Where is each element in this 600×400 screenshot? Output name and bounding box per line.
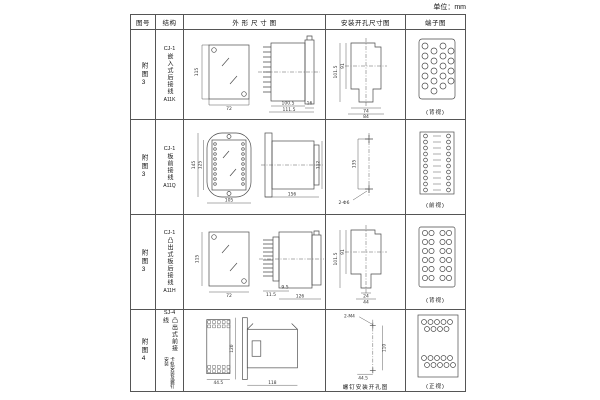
terminal-cell-a11q: (前视) [406, 120, 466, 215]
dim-depth2: 111.5 [282, 106, 295, 112]
dim-width: 105 [224, 198, 233, 204]
dim-socket-depth: 9.5 [281, 285, 288, 291]
dim-length: 126 [295, 294, 304, 300]
terminal-drawing-a11k [407, 33, 465, 107]
code-label: A11H [163, 288, 175, 294]
figure-number: 附图3 [138, 62, 148, 88]
unit-label: 单位：mm [130, 2, 466, 12]
dim-cutout-h2: 91 [340, 63, 346, 69]
dim-flange: 16 [306, 100, 312, 106]
outline-cell-a11q: 145 125 105 156 112 [184, 120, 326, 215]
dim-hole-spacing: 110 [381, 344, 387, 353]
fig-no-a11h: 附图3 [131, 215, 156, 310]
outline-cell-a11k: 115 72 100.5 111.5 16 [184, 30, 326, 120]
terminal-drawing-sj4 [407, 311, 465, 381]
structure-a11h: CJ-1 凸出式板后接线 A11H [156, 215, 184, 310]
structure-label: 凸出式前接线 [161, 317, 179, 355]
mounting-cell-a11q: 135 2-Φ6 [326, 120, 406, 215]
spec-table: 图号 结构 外 形 尺 寸 图 安装开孔尺寸图 端子图 附图3 CJ-1 嵌入式… [130, 14, 466, 392]
code-label: A11Q [163, 183, 175, 189]
mounting-drawing-a11k: 101.5 91 74 84 [327, 31, 405, 119]
code-label: A11K [164, 97, 176, 103]
col-header-terminal: 端子图 [406, 15, 466, 30]
dim-height: 120 [228, 344, 234, 353]
mounting-caption: 螺钉安装开孔图 [343, 383, 389, 391]
terminal-drawing-a11h [407, 221, 465, 295]
dim-cutout-h1: 101.5 [333, 65, 339, 78]
fig-no-a11q: 附图3 [131, 120, 156, 215]
terminal-view-caption: (背视) [426, 108, 445, 116]
col-header-fig-no: 图号 [131, 15, 156, 30]
dim-side-height: 112 [315, 161, 321, 170]
outline-drawing-a11h: 11.5 9.5 126 115 72 [185, 218, 325, 306]
dim-length: 118 [268, 380, 277, 386]
dim-cutout-w1: 74 [363, 108, 369, 114]
hole-spec: 2-M4 [344, 313, 355, 319]
figure-number: 附图4 [138, 338, 148, 364]
dim-pin-depth: 11.5 [265, 292, 275, 298]
model-label: CJ-1 [164, 146, 176, 152]
model-label: CJ-1 [164, 46, 176, 52]
dim-width: 72 [226, 106, 232, 112]
col-header-outline: 外 形 尺 寸 图 [184, 15, 326, 30]
model-label: SJ-4 [164, 310, 175, 316]
outline-drawing-a11k: 115 72 100.5 111.5 16 [185, 31, 325, 119]
mounting-cell-sj4: 2-M4 110 44.5 螺钉安装开孔图 [326, 310, 406, 392]
structure-label: 嵌入式后接线 [165, 53, 174, 95]
dim-height: 115 [194, 255, 200, 264]
figure-number: 附图3 [138, 154, 148, 180]
dim-height-inner: 125 [197, 161, 203, 170]
mounting-drawing-sj4: 2-M4 110 44.5 [327, 310, 405, 382]
dim-hole-spacing: 135 [351, 160, 357, 169]
dim-cutout-h1: 101.5 [333, 252, 339, 265]
col-header-mounting: 安装开孔尺寸图 [326, 15, 406, 30]
mounting-drawing-a11h: 101.5 91 24 44 [327, 218, 405, 306]
dim-slot-w: 24 [363, 294, 369, 300]
dim-width: 44.5 [213, 380, 223, 386]
mounting-note: 卡轨安装及螺钉安装 [164, 357, 176, 391]
fig-no-sj4: 附图4 [131, 310, 156, 392]
terminal-view-caption: (正视) [426, 382, 445, 390]
mounting-cell-a11h: 101.5 91 24 44 [326, 215, 406, 310]
terminal-view-caption: (前视) [426, 201, 445, 209]
dim-cutout-w: 44 [363, 300, 369, 306]
dim-length: 156 [287, 192, 296, 198]
terminal-cell-a11k: (背视) [406, 30, 466, 120]
dim-width: 72 [226, 293, 232, 299]
dim-cutout-w2: 84 [363, 114, 369, 119]
outline-cell-a11h: 11.5 9.5 126 115 72 [184, 215, 326, 310]
dim-height: 115 [194, 67, 200, 76]
structure-a11k: CJ-1 嵌入式后接线 A11K [156, 30, 184, 120]
terminal-cell-sj4: (正视) [406, 310, 466, 392]
dim-depth1: 100.5 [281, 100, 294, 106]
dim-height-outer: 145 [191, 161, 197, 170]
model-label: CJ-1 [164, 230, 176, 236]
dim-cutout-h2: 91 [340, 249, 346, 255]
outline-drawing-sj4: 44.5 120 118 [185, 310, 325, 391]
structure-label: 板前接线 [165, 153, 174, 181]
mounting-drawing-a11q: 135 2-Φ6 [327, 123, 405, 211]
dim-offset: 44.5 [358, 376, 368, 382]
col-header-structure: 结构 [156, 15, 184, 30]
mounting-cell-a11k: 101.5 91 74 84 [326, 30, 406, 120]
fig-no-a11k: 附图3 [131, 30, 156, 120]
structure-sj4: SJ-4 凸出式前接线 卡轨安装及螺钉安装 [156, 310, 184, 392]
structure-label: 凸出式板后接线 [165, 237, 174, 286]
outline-cell-sj4: 44.5 120 118 [184, 310, 326, 392]
figure-number: 附图3 [138, 249, 148, 275]
terminal-view-caption: (背视) [426, 296, 445, 304]
hole-spec: 2-Φ6 [338, 200, 349, 206]
structure-a11q: CJ-1 板前接线 A11Q [156, 120, 184, 215]
terminal-drawing-a11q [407, 126, 465, 200]
terminal-cell-a11h: (背视) [406, 215, 466, 310]
outline-drawing-a11q: 145 125 105 156 112 [185, 123, 325, 211]
